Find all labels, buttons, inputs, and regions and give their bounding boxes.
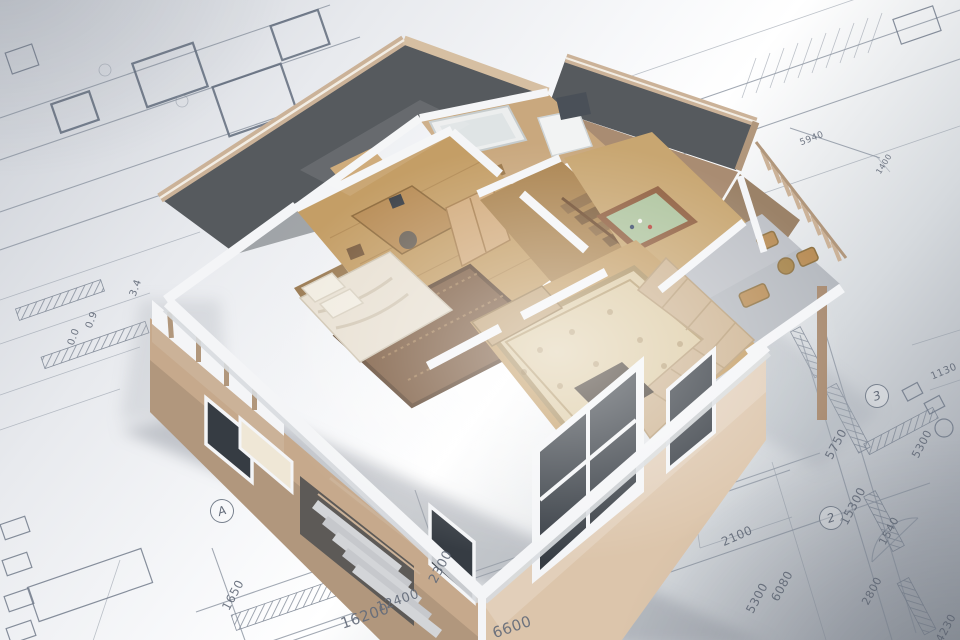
- desk-chair: [399, 231, 417, 249]
- house-model: [0, 0, 960, 640]
- scene: 1620012400660023001650210053006080575015…: [0, 0, 960, 640]
